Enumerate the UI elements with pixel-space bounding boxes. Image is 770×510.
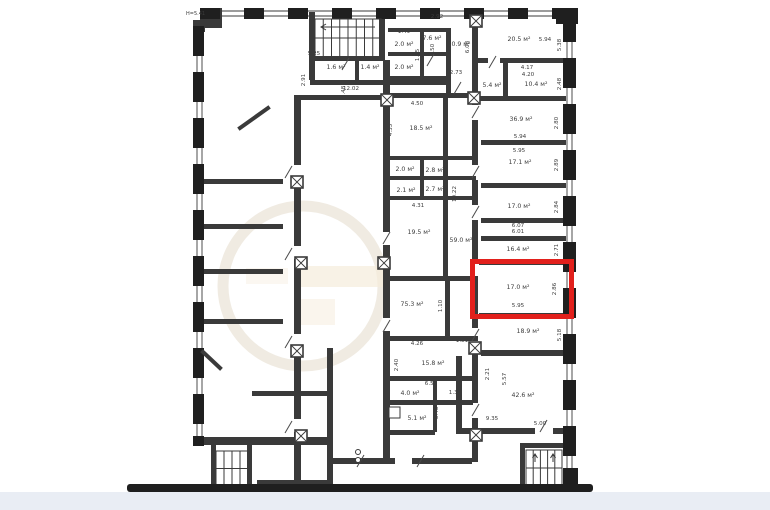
wall-segment <box>481 350 566 356</box>
wall-segment <box>520 443 568 448</box>
wall-segment <box>383 245 390 318</box>
room-area-label: 5.1 м² <box>408 415 427 422</box>
dimension-label: 5.48 <box>341 85 347 98</box>
window-pier <box>508 8 528 19</box>
wall-segment <box>203 224 283 229</box>
wall-segment <box>310 80 448 85</box>
dimension-label: 1.10 <box>438 299 444 312</box>
wall-segment <box>456 428 535 434</box>
dimension-label: 2.21 <box>485 367 491 380</box>
wall-segment <box>203 269 283 274</box>
fixture-icon <box>389 407 400 418</box>
window-pier <box>193 302 204 332</box>
room-area-label: 2.0 м² <box>395 41 414 48</box>
dimension-label: 4.26 <box>411 341 424 347</box>
room-area-label: 1.6 м² <box>327 64 346 71</box>
vent-shaft-icon <box>468 92 480 104</box>
dimension-label: 5.38 <box>557 38 563 51</box>
wall-segment <box>388 156 476 160</box>
window-pier <box>193 394 204 424</box>
window-pier <box>244 8 264 19</box>
room-area-label: 16.4 м² <box>507 246 530 253</box>
wall-segment <box>520 448 525 487</box>
dimension-label: 2.71 <box>554 243 560 256</box>
room-area-label: 1.4 м² <box>361 64 380 71</box>
dimension-label: 6.57 <box>425 381 438 387</box>
dimension-label: 2.40 <box>394 358 400 371</box>
dimension-label: 3.46 <box>434 406 440 419</box>
window-pier <box>376 8 396 19</box>
floorplan-svg: Н=5.41 2.921.497.6 м²2.0 м²10.9 м²4.506.… <box>0 0 770 510</box>
wall-segment <box>383 60 390 232</box>
dimension-label: 2.48 <box>557 77 563 90</box>
dimension-label: 10.22 <box>452 186 458 202</box>
dimension-label: 4.53 <box>443 229 449 242</box>
window-pier <box>563 58 576 88</box>
window-pier <box>193 256 204 286</box>
vent-shaft-icon <box>378 257 390 269</box>
room-area-label: 17.1 м² <box>509 159 532 166</box>
wall-segment <box>445 276 450 336</box>
wall-segment <box>478 58 488 63</box>
room-area-label: 75.3 м² <box>401 301 424 308</box>
room-area-label: 36.9 м² <box>510 116 533 123</box>
dimension-label: 5.95 <box>512 303 525 309</box>
dimension-label: 1.81 <box>456 338 469 344</box>
window-pier <box>193 72 204 102</box>
dimension-label: 5.18 <box>557 328 563 341</box>
wall-segment <box>388 196 476 200</box>
wall-segment <box>472 220 478 263</box>
vent-shaft-icon <box>291 345 303 357</box>
window-pier <box>563 334 576 364</box>
wall-segment <box>472 96 566 101</box>
wall-segment <box>481 236 566 241</box>
dimension-label: 4.31 <box>412 203 425 209</box>
window-pier <box>193 210 204 240</box>
wall-segment <box>472 180 478 205</box>
room-area-label: 17.0 м² <box>508 203 531 210</box>
room-area-label: 2.1 м² <box>397 187 416 194</box>
dimension-label: 5.00 <box>534 421 547 427</box>
wall-segment <box>500 58 566 63</box>
floorplan-image: Н=5.41 2.921.497.6 м²2.0 м²10.9 м²4.506.… <box>0 0 770 510</box>
dimension-label: 2.89 <box>554 158 560 171</box>
wall-segment <box>503 63 508 96</box>
wall-segment <box>294 95 301 165</box>
dimension-label: 1.32 <box>449 390 461 396</box>
room-area-label: 19.5 м² <box>408 229 431 236</box>
dimension-label: 2.73 <box>450 70 463 76</box>
vent-shaft-icon <box>295 430 307 442</box>
room-area-label: 59.0 м² <box>450 237 473 244</box>
room-area-label: 18.9 м² <box>517 328 540 335</box>
vent-shaft-icon <box>291 176 303 188</box>
room-area-label: 2.7 м² <box>426 186 445 193</box>
room-area-label: 10.4 м² <box>525 81 548 88</box>
room-area-label: 15.8 м² <box>422 360 445 367</box>
wall-segment <box>333 458 395 464</box>
dimension-label: 5.95 <box>513 148 526 154</box>
wall-segment <box>383 331 390 462</box>
room-area-label: 17.0 м² <box>507 284 530 291</box>
wall-segment <box>197 437 330 445</box>
vent-shaft-icon <box>470 15 482 27</box>
vent-shaft-icon <box>381 94 393 106</box>
wall-segment <box>203 319 283 324</box>
dimension-label: 2.84 <box>554 200 560 213</box>
wall-segment <box>309 12 315 80</box>
window-pier <box>193 26 204 56</box>
dimension-label: 6.01 <box>512 229 525 235</box>
window-pier <box>563 426 576 456</box>
wall-segment <box>203 179 283 184</box>
wall-segment <box>383 400 473 405</box>
room-area-label: 42.6 м² <box>512 392 535 399</box>
wall-segment <box>420 156 424 200</box>
plumbing-icon <box>356 458 361 463</box>
wall-segment <box>383 93 478 98</box>
dimension-label: 5.94 <box>514 134 527 140</box>
building-baseline <box>127 484 593 492</box>
window-pier <box>563 468 578 486</box>
vent-shaft-icon <box>295 257 307 269</box>
vent-shaft-icon <box>470 429 482 441</box>
room-area-label: 4.0 м² <box>401 390 420 397</box>
dimension-label: 4.50 <box>411 101 424 107</box>
window-pier <box>193 118 204 148</box>
dimension-label: 2.91 <box>301 73 307 86</box>
dimension-label: 4.35 <box>388 123 394 136</box>
wall-segment <box>355 60 359 80</box>
dimension-label: 4.50 <box>430 43 436 56</box>
room-area-label: 20.5 м² <box>508 36 531 43</box>
room-area-label: 18.5 м² <box>410 125 433 132</box>
dimension-label: 5.94 <box>539 37 552 43</box>
window-pier <box>193 164 204 194</box>
window-pier <box>563 104 576 134</box>
dimension-label: 9.35 <box>486 416 499 422</box>
window-pier <box>288 8 308 19</box>
dimension-label: 4.20 <box>522 72 535 78</box>
room-area-label: 5.4 м² <box>483 82 502 89</box>
window-pier <box>193 436 204 446</box>
wall-segment <box>388 176 476 180</box>
room-area-label: 2.8 м² <box>426 167 445 174</box>
plumbing-icon <box>356 450 361 455</box>
room-area-label: 2.0 м² <box>396 166 415 173</box>
wall-segment <box>294 259 301 334</box>
wall-segment <box>383 430 435 435</box>
wall-segment <box>383 276 478 281</box>
dimension-label: 2.80 <box>554 116 560 129</box>
dimension-label: 5.25 <box>308 51 321 57</box>
room-area-label: 2.0 м² <box>395 64 414 71</box>
window-pier <box>563 12 576 42</box>
dimension-label: 4.17 <box>521 65 534 71</box>
scale-note: Н=5.41 <box>186 11 205 17</box>
wall-segment <box>327 348 333 487</box>
window-pier <box>563 150 576 180</box>
ground-strip <box>0 492 770 510</box>
dimension-label: 1.95 <box>415 48 421 61</box>
dimension-label: 2.86 <box>552 282 558 295</box>
dimension-label: 1.49 <box>398 29 411 35</box>
window-pier <box>563 380 576 410</box>
wall-segment <box>388 76 446 80</box>
wall-segment <box>481 140 566 145</box>
wall-segment <box>211 445 216 487</box>
window-pier <box>332 8 352 19</box>
window-pier <box>563 196 576 226</box>
room-area-label: 7.6 м² <box>423 35 442 42</box>
wall-segment <box>446 28 451 96</box>
wall-segment <box>481 183 566 188</box>
dimension-label: 2.92 <box>431 14 443 20</box>
dimension-label: 6.08 <box>465 40 471 53</box>
wall-segment <box>252 391 330 396</box>
vent-shaft-icon <box>469 342 481 354</box>
dimension-label: 5.57 <box>502 372 508 385</box>
